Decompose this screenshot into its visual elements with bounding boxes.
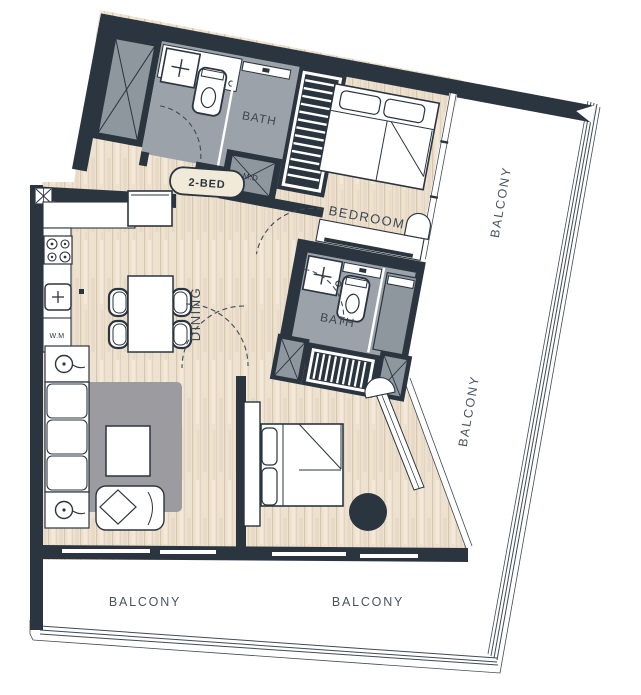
bathroom-2: BATH: [270, 238, 430, 404]
washing-machine-label: W.M: [50, 333, 65, 340]
dining-label: DINING: [188, 287, 203, 342]
floor-plan-svg: BATH M.D: [0, 0, 641, 695]
coffee-table: [106, 426, 150, 476]
dining-chair: [109, 289, 128, 316]
sofa: [45, 382, 89, 492]
sink-icon: [161, 48, 201, 88]
window-slot: [272, 552, 346, 556]
fridge: [128, 191, 172, 226]
dining-table: [128, 276, 173, 352]
kitchen-counter-top-run: [43, 202, 135, 228]
kitchen-sink-icon: [45, 284, 71, 310]
unit-type-badge: 2-BED: [169, 166, 245, 198]
side-table-lamp: [45, 492, 89, 528]
stove-icon: [44, 236, 72, 264]
lounge-chair: [96, 486, 164, 530]
window-slot: [360, 554, 418, 558]
balcony-label-bottom-left: BALCONY: [109, 595, 181, 609]
balcony-label-bottom-right: BALCONY: [332, 595, 404, 609]
dining-chair: [109, 321, 128, 348]
floor-plan-page: BATH M.D: [0, 0, 641, 695]
window-slot: [160, 550, 216, 554]
side-table-lamp: [45, 346, 89, 382]
bed-double-icon: [319, 84, 439, 190]
floor-outlet: [79, 289, 84, 294]
structural-column: [349, 493, 387, 531]
window-slot: [62, 549, 150, 553]
wall-left: [30, 185, 43, 630]
sink-icon: [303, 256, 343, 296]
